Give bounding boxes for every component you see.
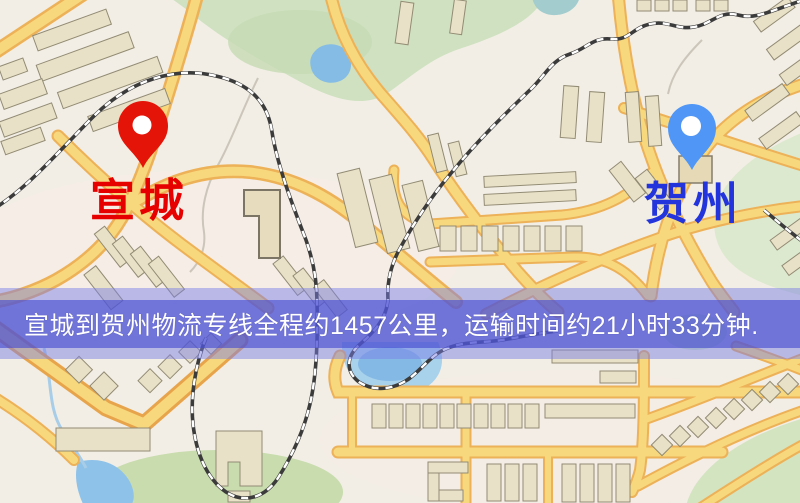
route-info-banner-core: 宣城到贺州物流专线全程约1457公里，运输时间约21小时33分钟. xyxy=(0,300,800,348)
map-screenshot: 宣城 贺州 宣城到贺州物流专线全程约1457公里，运输时间约21小时33分钟. xyxy=(0,0,800,503)
route-info-text: 宣城到贺州物流专线全程约1457公里，运输时间约21小时33分钟. xyxy=(0,306,759,342)
route-info-banner: 宣城到贺州物流专线全程约1457公里，运输时间约21小时33分钟. xyxy=(0,288,800,359)
origin-label: 宣城 xyxy=(90,179,188,224)
destination-label: 贺州 xyxy=(644,182,742,227)
map-artwork xyxy=(0,0,800,503)
